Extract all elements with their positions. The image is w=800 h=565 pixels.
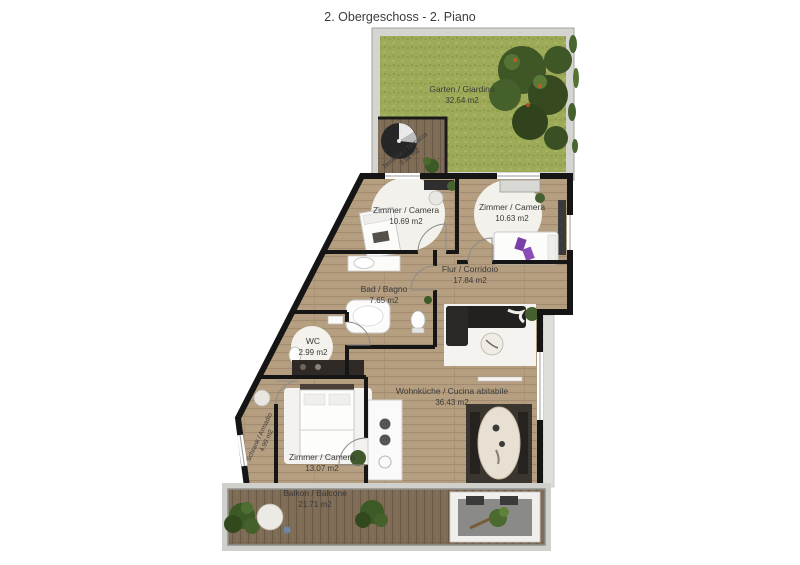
bathroom-label: Bad / Bagno [361, 284, 408, 294]
sink [354, 258, 374, 269]
bedroom3-label: Zimmer / Camera [289, 452, 355, 462]
garden-area: 32.54 m2 [445, 96, 479, 105]
bedroom2-label: Zimmer / Camera [479, 202, 545, 212]
wardrobe [558, 200, 566, 255]
bedroom1-label: Zimmer / Camera [373, 205, 439, 215]
wc-label: WC [306, 336, 320, 346]
living-area: 36.43 m2 [435, 398, 469, 407]
bathtub-basin [353, 306, 383, 326]
balcony-table [257, 504, 283, 530]
double-bed [300, 384, 354, 456]
single-bed [494, 232, 558, 264]
bathroom-area: 7.65 m2 [370, 296, 399, 305]
balcony-label: Balkon / Balcone [283, 488, 347, 498]
bedroom3-area: 13.07 m2 [305, 464, 339, 473]
room-terrace: Terrasse / Terrazza 3.66 m2 [378, 118, 446, 177]
exterior-ledge [543, 315, 554, 487]
garden-label: Garten / Giardino [429, 84, 494, 94]
balcony-lounge [450, 492, 540, 542]
floor-plan-page: 2. Obergeschoss - 2. Piano Garten / Giar… [0, 0, 800, 565]
potted-plant-leaf [423, 157, 431, 165]
bedroom2-area: 10.63 m2 [495, 214, 529, 223]
sideboard [478, 377, 522, 381]
floor-plan: 2. Obergeschoss - 2. Piano Garten / Giar… [0, 0, 800, 565]
coffee-table [481, 333, 503, 355]
balcony-area: 21.71 m2 [298, 500, 332, 509]
living-label: Wohnküche / Cucina abitabile [396, 386, 509, 396]
cabinet-decor [315, 364, 321, 370]
plant [424, 296, 432, 304]
kitchen-island [368, 400, 402, 480]
toilet [411, 311, 425, 329]
chair [429, 191, 443, 205]
corridor-label: Flur / Corridoio [442, 264, 498, 274]
bedroom1-area: 10.69 m2 [389, 217, 423, 226]
stool [254, 390, 270, 406]
apartment: Zimmer / Camera 10.69 m2 Zimmer / Camera… [238, 176, 570, 487]
room-balcony: Balkon / Balcone 21.71 m2 [224, 486, 548, 548]
dining-table [478, 407, 520, 479]
cabinet-decor [300, 364, 306, 370]
wc-area: 2.99 m2 [299, 348, 328, 357]
toilet-tank [412, 328, 424, 333]
dresser [500, 180, 540, 192]
plant [525, 307, 539, 321]
dining-set [466, 404, 532, 484]
balcony-decor [284, 527, 291, 534]
page-title: 2. Obergeschoss - 2. Piano [324, 10, 476, 24]
corridor-area: 17.84 m2 [453, 276, 487, 285]
small-sink [328, 316, 343, 324]
